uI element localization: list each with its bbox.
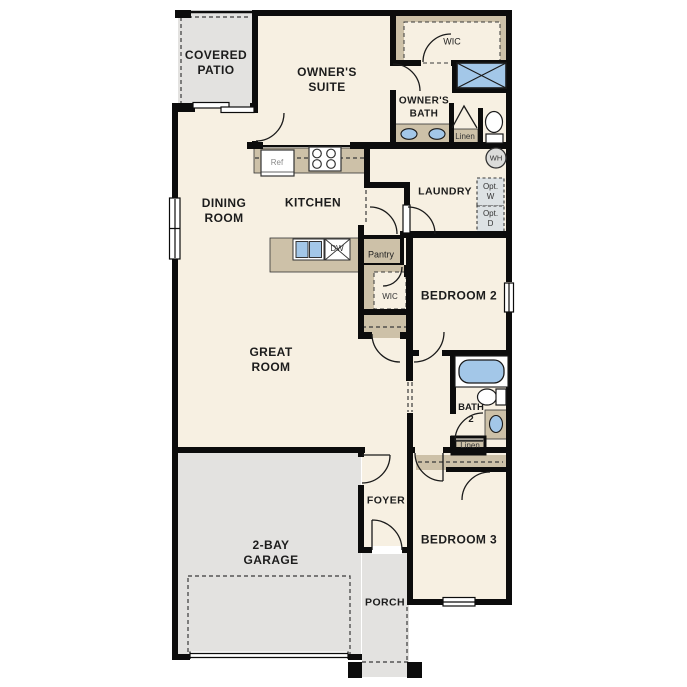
room-label-covered-patio: COVERED PATIO: [185, 48, 247, 78]
room-label-owners-wic: WIC: [443, 36, 461, 47]
vanity-sink-icon: [429, 129, 445, 140]
room-label-great-room: GREAT ROOM: [249, 345, 292, 375]
room-label-porch: PORCH: [365, 596, 405, 609]
floor-plan: COVERED PATIO OWNER'S SUITE WIC OWNER'S …: [0, 0, 687, 687]
room-label-kitchen: KITCHEN: [285, 196, 341, 211]
room-label-bedroom3: BEDROOM 3: [421, 533, 497, 548]
label-water-heater: WH: [490, 153, 503, 162]
laundry-double-door-leaves: [403, 205, 410, 233]
label-opt-washer: Opt. W: [483, 182, 498, 202]
room-label-dining: DINING ROOM: [202, 196, 246, 226]
room-label-laundry: LAUNDRY: [418, 185, 472, 198]
bathtub-icon: [459, 360, 504, 383]
room-label-bedroom2: BEDROOM 2: [421, 289, 497, 304]
room-label-owners-suite: OWNER'S SUITE: [297, 65, 357, 95]
label-refrigerator: Ref: [271, 158, 283, 168]
sink-icon: [490, 416, 503, 433]
label-hall-wic: WIC: [382, 292, 398, 302]
room-label-bath2: BATH 2: [458, 402, 484, 426]
room-label-garage: 2-BAY GARAGE: [243, 538, 298, 568]
porch-area: [362, 553, 409, 677]
vanity-sink-icon: [401, 129, 417, 140]
label-opt-dryer: Opt. D: [483, 209, 498, 229]
floor-plan-drawing: [0, 0, 687, 687]
room-label-owners-bath: OWNER'S BATH: [399, 96, 449, 121]
label-dishwasher: DW: [330, 244, 343, 254]
label-linen-owner: Linen: [455, 132, 475, 142]
front-door-opening: [372, 546, 402, 554]
room-label-foyer: FOYER: [367, 494, 405, 507]
label-pantry: Pantry: [368, 249, 394, 260]
toilet-icon: [486, 112, 503, 133]
label-linen-bath2: Linen: [460, 441, 480, 451]
